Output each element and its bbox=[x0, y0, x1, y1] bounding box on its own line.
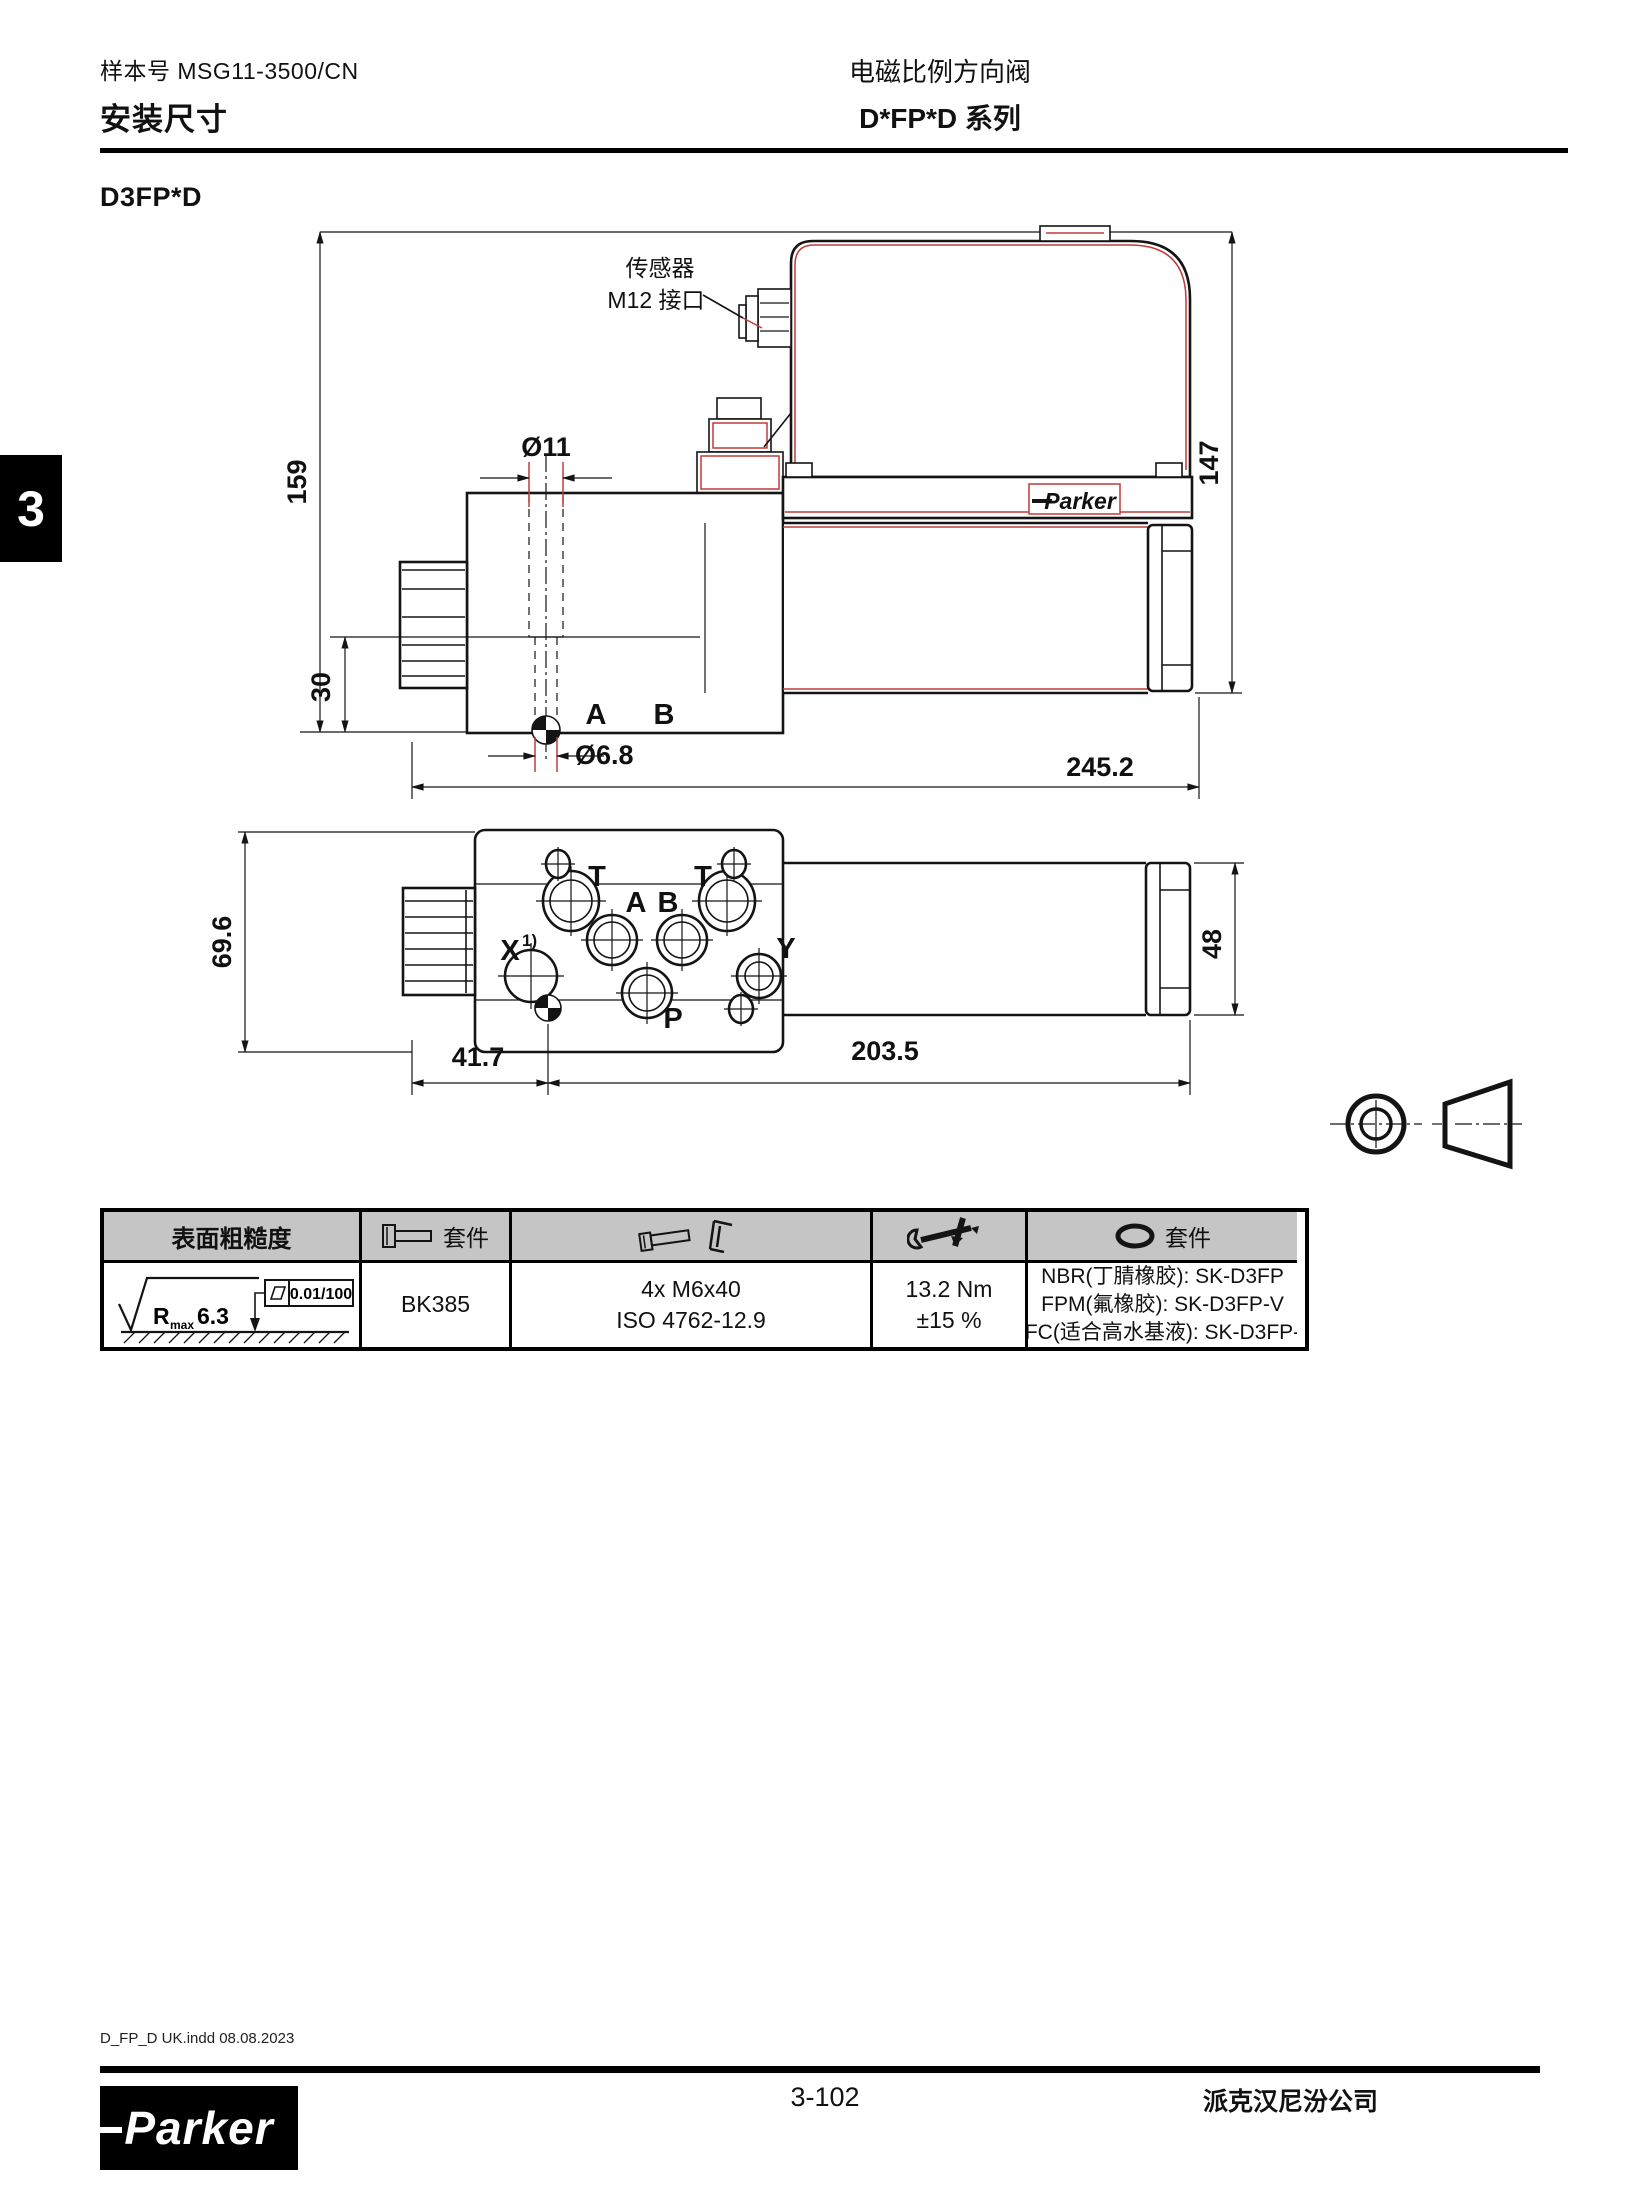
solenoid-housing bbox=[791, 226, 1190, 477]
cell-screws: 4x M6x40 ISO 4762-12.9 bbox=[512, 1263, 873, 1347]
svg-text:6.3: 6.3 bbox=[197, 1303, 229, 1329]
torque-line1: 13.2 Nm bbox=[906, 1274, 993, 1305]
svg-text:Ø6.8: Ø6.8 bbox=[575, 740, 634, 770]
label-y: Y bbox=[776, 933, 795, 965]
header-screws bbox=[512, 1212, 873, 1263]
cell-bolt-kit: BK385 bbox=[362, 1263, 512, 1347]
side-port-b: B bbox=[654, 699, 675, 731]
datum-target-face bbox=[535, 995, 561, 1021]
flatness-frame: 0.01/100 bbox=[265, 1280, 353, 1306]
datum-target bbox=[532, 716, 560, 744]
cable-connector bbox=[697, 398, 791, 493]
svg-text:41.7: 41.7 bbox=[452, 1042, 505, 1072]
label-b: B bbox=[658, 887, 679, 919]
side-port-a: A bbox=[586, 699, 607, 731]
label-t-right: T bbox=[694, 861, 712, 893]
port-face-view: T T A B X 1) Y P 69.6 41.7 bbox=[207, 830, 1244, 1095]
label-p: P bbox=[663, 1003, 682, 1035]
spec-table-header: 表面粗糙度 套件 bbox=[104, 1212, 1305, 1263]
cell-surface-roughness: R max 6.3 0.01/100 bbox=[104, 1263, 362, 1347]
file-info: D_FP_D UK.indd 08.08.2023 bbox=[100, 2030, 294, 2047]
valve-body-side bbox=[467, 493, 783, 733]
svg-text:203.5: 203.5 bbox=[851, 1036, 919, 1066]
series-title: 电磁比例方向阀 bbox=[760, 52, 1120, 89]
hatching bbox=[124, 1332, 345, 1343]
label-t-left: T bbox=[588, 861, 606, 893]
hand-knob-side bbox=[400, 562, 467, 688]
solenoid-tube-side bbox=[783, 523, 1192, 693]
seal-hfc: HFC(适合高水基液): SK-D3FP-H bbox=[1028, 1319, 1297, 1347]
svg-text:max: max bbox=[170, 1318, 194, 1332]
seal-fpm: FPM(氟橡胶): SK-D3FP-V bbox=[1028, 1291, 1297, 1319]
solenoid-tube-face bbox=[783, 863, 1190, 1015]
leader-line bbox=[703, 295, 743, 318]
sensor-label-line2: M12 接口 bbox=[607, 287, 704, 313]
screws-line2: ISO 4762-12.9 bbox=[616, 1305, 766, 1336]
doc-number: 样本号 MSG11-3500/CN bbox=[100, 52, 359, 86]
svg-text:48: 48 bbox=[1197, 929, 1227, 959]
catalog-page: 样本号 MSG11-3500/CN 安装尺寸 电磁比例方向阀 D*FP*D 系列… bbox=[0, 0, 1650, 2200]
tube-end-cap bbox=[1148, 525, 1192, 691]
parker-logo-plate: Parker bbox=[1029, 484, 1120, 514]
sensor-label-line1: 传感器 bbox=[626, 255, 695, 281]
projection-symbol bbox=[1330, 1082, 1522, 1166]
screw-icon bbox=[382, 1223, 434, 1249]
svg-text:30: 30 bbox=[306, 672, 336, 702]
torque-line2: ±15 % bbox=[906, 1305, 993, 1336]
svg-text:159: 159 bbox=[282, 459, 312, 504]
page-title: 安装尺寸 bbox=[100, 94, 359, 139]
header-bolt-kit: 套件 bbox=[362, 1212, 512, 1263]
screw-caliper-icon bbox=[636, 1219, 746, 1253]
dim-dia6-8: Ø6.8 bbox=[488, 737, 634, 772]
side-view: 传感器 M12 接口 bbox=[282, 226, 1242, 799]
seal-nbr: NBR(丁腈橡胶): SK-D3FP bbox=[1028, 1263, 1297, 1291]
svg-text:69.6: 69.6 bbox=[207, 916, 237, 969]
company-name: 派克汉尼汾公司 bbox=[1203, 2082, 1378, 2118]
screws-line1: 4x M6x40 bbox=[616, 1274, 766, 1305]
label-x-sup: 1) bbox=[522, 931, 537, 950]
spec-table-row: R max 6.3 0.01/100 bbox=[104, 1263, 1305, 1347]
header-surface-roughness: 表面粗糙度 bbox=[104, 1212, 362, 1263]
series-subtitle: D*FP*D 系列 bbox=[760, 97, 1120, 137]
footer-rule bbox=[100, 2066, 1540, 2073]
header-left: 样本号 MSG11-3500/CN 安装尺寸 bbox=[100, 52, 359, 139]
dim-147: 147 bbox=[1194, 232, 1242, 693]
hand-knob-face bbox=[403, 888, 475, 995]
svg-text:R: R bbox=[153, 1303, 170, 1329]
svg-text:147: 147 bbox=[1194, 440, 1224, 485]
m12-connector bbox=[739, 289, 791, 347]
page-number: 3-102 bbox=[20, 2082, 1630, 2113]
label-a: A bbox=[626, 887, 647, 919]
dim-48: 48 bbox=[1194, 863, 1244, 1015]
roughness-symbol: R max 6.3 0.01/100 bbox=[107, 1266, 357, 1344]
header-seal-kit: 套件 bbox=[1028, 1212, 1297, 1263]
svg-text:Ø11: Ø11 bbox=[521, 432, 571, 462]
header-right: 电磁比例方向阀 D*FP*D 系列 bbox=[760, 52, 1120, 137]
brand-text: Parker bbox=[1044, 488, 1117, 514]
svg-text:245.2: 245.2 bbox=[1066, 752, 1134, 782]
spec-table: 表面粗糙度 套件 bbox=[100, 1208, 1309, 1351]
header-torque bbox=[873, 1212, 1028, 1263]
oring-icon bbox=[1114, 1223, 1156, 1249]
svg-text:0.01/100: 0.01/100 bbox=[289, 1286, 351, 1303]
cell-seal-kits: NBR(丁腈橡胶): SK-D3FP FPM(氟橡胶): SK-D3FP-V H… bbox=[1028, 1263, 1297, 1347]
label-x: X bbox=[500, 935, 520, 967]
torque-wrench-icon bbox=[907, 1216, 991, 1256]
cell-torque: 13.2 Nm ±15 % bbox=[873, 1263, 1028, 1347]
dimension-drawing: 传感器 M12 接口 bbox=[0, 150, 1650, 1200]
